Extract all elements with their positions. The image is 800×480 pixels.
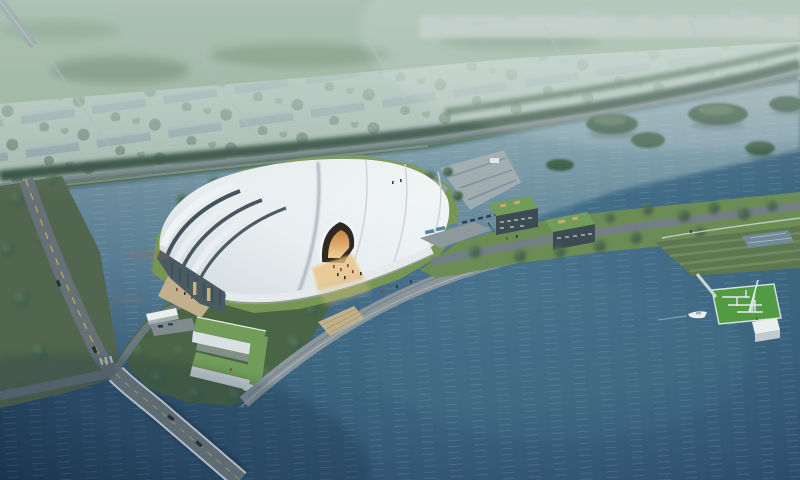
atmosphere xyxy=(0,0,800,480)
aerial-rendering xyxy=(0,0,800,480)
rendering-stage xyxy=(0,0,800,480)
color-cast xyxy=(0,0,800,480)
